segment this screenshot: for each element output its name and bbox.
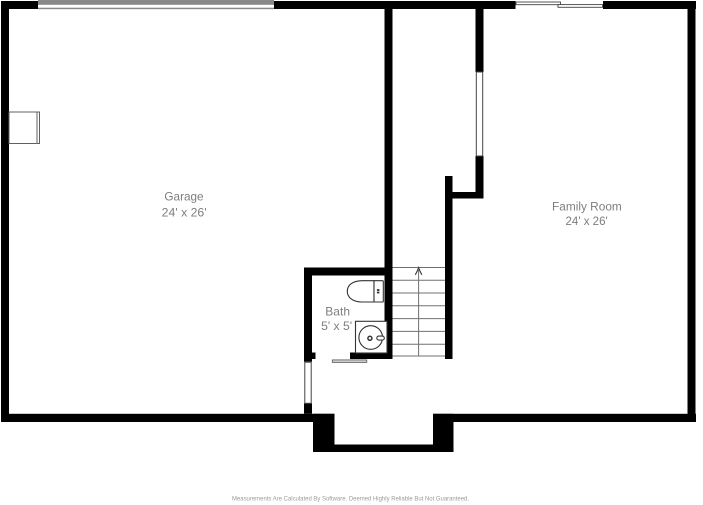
svg-text:Garage: Garage bbox=[164, 189, 203, 203]
svg-text:Measurements Are Calculated By: Measurements Are Calculated By Software.… bbox=[232, 496, 469, 503]
svg-text:5' x 5': 5' x 5' bbox=[321, 319, 352, 333]
svg-text:Family Room: Family Room bbox=[552, 199, 622, 213]
svg-text:24' x 26': 24' x 26' bbox=[566, 214, 608, 228]
svg-text:24' x 26': 24' x 26' bbox=[162, 206, 207, 220]
svg-text:Bath: Bath bbox=[325, 304, 350, 318]
